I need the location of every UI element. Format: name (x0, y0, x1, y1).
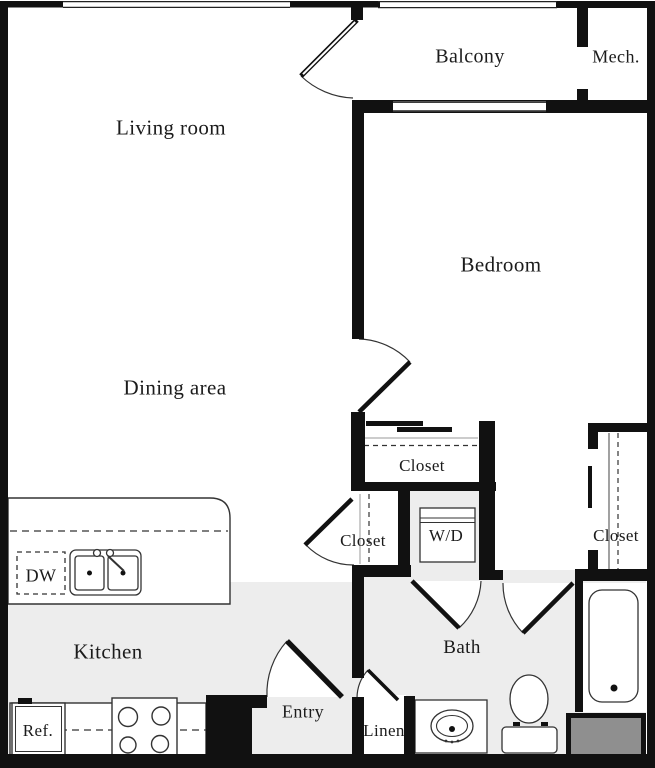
room-label-bath: Bath (443, 637, 481, 659)
living-room-window (63, 1, 290, 8)
bedroom-door-swing (359, 339, 410, 412)
sliding-door-panel (397, 427, 452, 432)
wall-closet-left (351, 412, 365, 491)
appliance-label-washer-dryer: W/D (429, 526, 463, 546)
vanity-sink (415, 700, 487, 753)
room-label-balcony: Balcony (435, 46, 504, 69)
wall-laundry-post (479, 570, 503, 580)
wall-top-b (290, 1, 380, 8)
closet-label-linen: Linen (363, 721, 405, 741)
appliance-label-dishwasher: DW (26, 566, 57, 587)
wall-balcony-door-stub (351, 1, 363, 20)
wall-entry-cap (206, 695, 267, 708)
wall-tub-west (575, 581, 583, 712)
wall-living-bedroom (352, 100, 364, 339)
wall-mech-a (577, 1, 588, 47)
wall-right (647, 1, 655, 762)
stove (112, 698, 177, 755)
wall-walkin-left-a (588, 423, 598, 449)
wall-walkin-left-b (588, 550, 598, 578)
wall-linen-right (404, 696, 415, 756)
wall-top-a (0, 1, 64, 8)
wall-hallcloset-right (398, 487, 410, 575)
wall-laundry-right (479, 421, 495, 573)
room-label-kitchen: Kitchen (73, 640, 142, 665)
closet-label-walk-in: Closet (593, 526, 639, 546)
floor-plan: Living room Balcony Mech. Bedroom Dining… (0, 0, 655, 768)
wall-mech-b (577, 89, 588, 113)
wall-closet-bottom (351, 482, 496, 491)
appliance-label-refrigerator: Ref. (23, 721, 53, 741)
wall-entry-block (206, 708, 252, 758)
wall-bath-west-upper (352, 572, 364, 678)
room-label-dining-area: Dining area (124, 376, 227, 401)
shaft-block (569, 716, 644, 760)
closet-label-hall: Closet (340, 531, 386, 551)
wall-top-right (556, 1, 655, 8)
walkin-closet-door-leaf (588, 466, 592, 508)
wall-walkin-bottom (575, 569, 647, 581)
bedroom-window (393, 102, 546, 112)
wall-bottom (0, 754, 655, 768)
bathtub (589, 590, 638, 702)
sliding-door-panel (366, 421, 423, 426)
room-label-mech: Mech. (592, 47, 639, 68)
room-label-bedroom: Bedroom (461, 253, 542, 278)
room-label-entry: Entry (282, 702, 324, 723)
kitchen-sink (70, 550, 141, 596)
closet-label-reach-in: Closet (399, 456, 445, 476)
balcony-railing (378, 2, 557, 8)
room-label-living-room: Living room (116, 116, 226, 141)
wall-left (0, 1, 8, 762)
